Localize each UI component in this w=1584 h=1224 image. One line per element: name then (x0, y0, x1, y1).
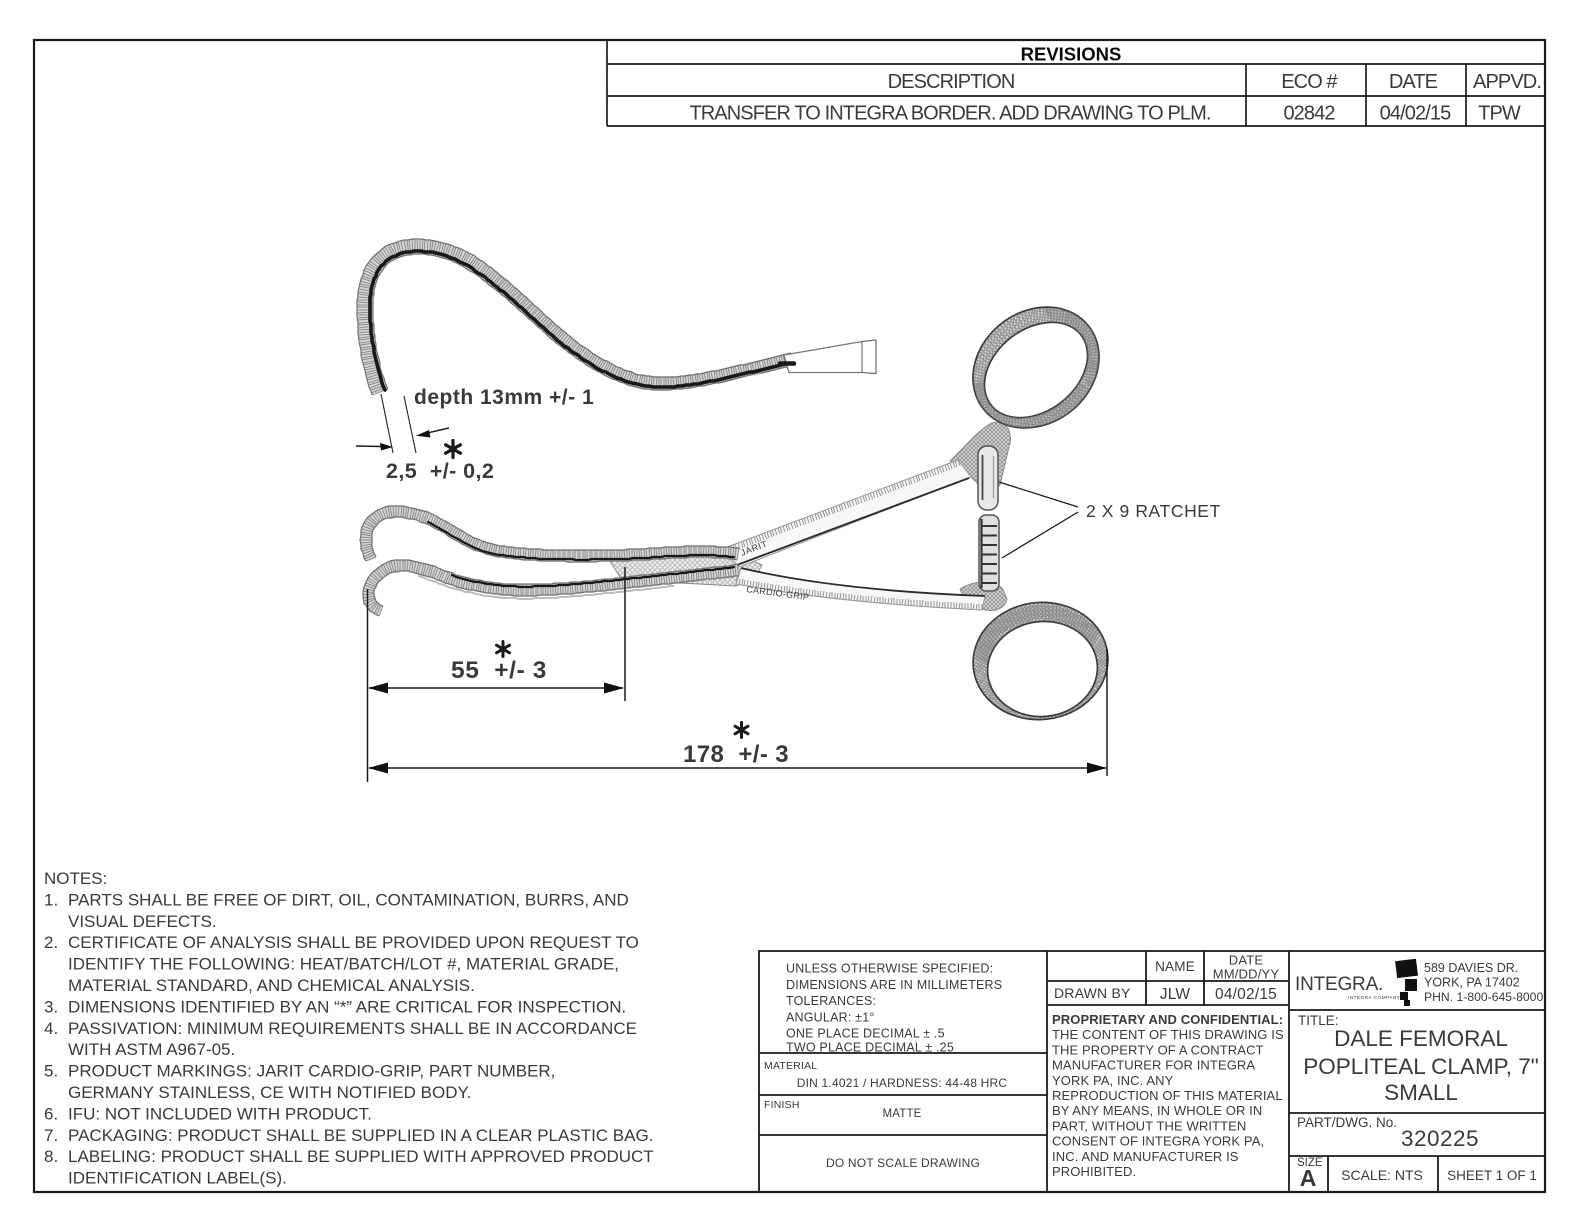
svg-text:PART/DWG. No.: PART/DWG. No. (1297, 1115, 1397, 1130)
svg-text:3.: 3. (44, 997, 58, 1016)
svg-text:WITH ASTM A967-05.: WITH ASTM A967-05. (68, 1040, 235, 1059)
svg-text:depth 13mm +/- 1: depth 13mm +/- 1 (414, 386, 594, 409)
svg-text:TWO PLACE DECIMAL ± .25: TWO PLACE DECIMAL ± .25 (786, 1041, 954, 1055)
svg-text:PASSIVATION: MINIMUM REQUIREME: PASSIVATION: MINIMUM REQUIREMENTS SHALL … (68, 1019, 637, 1038)
svg-text:178 +/- 3: 178 +/- 3 (683, 741, 789, 768)
svg-text:8.: 8. (44, 1147, 58, 1166)
svg-text:DATE: DATE (1389, 71, 1438, 93)
svg-text:PHN. 1-800-645-8000: PHN. 1-800-645-8000 (1424, 990, 1543, 1004)
svg-text:IDENTIFICATION LABEL(S).: IDENTIFICATION LABEL(S). (68, 1169, 287, 1188)
svg-text:5.: 5. (44, 1062, 58, 1081)
svg-text:2.: 2. (44, 933, 58, 952)
svg-text:02842: 02842 (1283, 103, 1335, 125)
svg-text:ECO #: ECO # (1281, 71, 1338, 93)
svg-text:PART, WITHOUT THE WRITTEN: PART, WITHOUT THE WRITTEN (1052, 1118, 1246, 1133)
svg-text:FINISH: FINISH (764, 1099, 800, 1111)
svg-text:YORK PA, INC. ANY: YORK PA, INC. ANY (1052, 1073, 1174, 1088)
svg-text:THE CONTENT OF THIS DRAWING IS: THE CONTENT OF THIS DRAWING IS (1052, 1027, 1284, 1042)
svg-text:SHEET 1 OF 1: SHEET 1 OF 1 (1447, 1168, 1537, 1183)
svg-text:PACKAGING: PRODUCT SHALL BE SU: PACKAGING: PRODUCT SHALL BE SUPPLIED IN … (68, 1126, 653, 1145)
svg-text:MATTE: MATTE (882, 1108, 921, 1120)
svg-text:DRAWN BY: DRAWN BY (1054, 985, 1131, 1001)
svg-text:1.: 1. (44, 890, 58, 909)
svg-text:DIMENSIONS IDENTIFIED BY AN “*: DIMENSIONS IDENTIFIED BY AN “*” ARE CRIT… (68, 997, 626, 1016)
svg-text:THE PROPERTY OF A CONTRACT: THE PROPERTY OF A CONTRACT (1052, 1042, 1264, 1057)
svg-text:TOLERANCES:: TOLERANCES: (786, 994, 876, 1008)
svg-text:DIMENSIONS ARE IN MILLIMETERS: DIMENSIONS ARE IN MILLIMETERS (786, 978, 1002, 992)
svg-text:ONE PLACE DECIMAL ± .5: ONE PLACE DECIMAL ± .5 (786, 1027, 945, 1041)
svg-text:DALE FEMORAL: DALE FEMORAL (1334, 1026, 1508, 1051)
svg-text:VISUAL DEFECTS.: VISUAL DEFECTS. (68, 912, 217, 931)
svg-text:2,5 +/- 0,2: 2,5 +/- 0,2 (386, 459, 494, 483)
svg-text:MATERIAL STANDARD, AND CHEMICA: MATERIAL STANDARD, AND CHEMICAL ANALYSIS… (68, 976, 475, 995)
svg-text:YORK, PA 17402: YORK, PA 17402 (1424, 976, 1520, 990)
svg-text:APPVD.: APPVD. (1473, 71, 1541, 93)
svg-text:IDENTIFY THE FOLLOWING: HEAT/B: IDENTIFY THE FOLLOWING: HEAT/BATCH/LOT #… (68, 955, 619, 974)
svg-text:IFU: NOT INCLUDED WITH PRODUCT: IFU: NOT INCLUDED WITH PRODUCT. (68, 1104, 372, 1123)
svg-text:DESCRIPTION: DESCRIPTION (888, 71, 1015, 93)
svg-text:TPW: TPW (1478, 103, 1521, 125)
svg-text:589 DAVIES DR.: 589 DAVIES DR. (1424, 961, 1518, 975)
svg-text:LABELING: PRODUCT SHALL BE SUP: LABELING: PRODUCT SHALL BE SUPPLIED WITH… (68, 1147, 654, 1166)
svg-text:SMALL: SMALL (1384, 1080, 1458, 1105)
svg-text:4.: 4. (44, 1019, 58, 1038)
svg-text:NOTES:: NOTES: (44, 869, 107, 888)
svg-text:CERTIFICATE OF ANALYSIS SHALL: CERTIFICATE OF ANALYSIS SHALL BE PROVIDE… (68, 933, 639, 952)
svg-text:PROHIBITED.: PROHIBITED. (1052, 1164, 1136, 1179)
svg-text:INTEGRA COMPANY: INTEGRA COMPANY (1348, 995, 1401, 1001)
svg-text:DO NOT SCALE DRAWING: DO NOT SCALE DRAWING (826, 1156, 980, 1170)
svg-text:TRANSFER TO INTEGRA BORDER. AD: TRANSFER TO INTEGRA BORDER. ADD DRAWING … (689, 103, 1210, 125)
svg-text:INC. AND MANUFACTURER IS: INC. AND MANUFACTURER IS (1052, 1149, 1239, 1164)
svg-text:MANUFACTURER FOR INTEGRA: MANUFACTURER FOR INTEGRA (1052, 1058, 1255, 1073)
svg-text:GERMANY STAINLESS, CE WITH NOT: GERMANY STAINLESS, CE WITH NOTIFIED BODY… (68, 1083, 471, 1102)
svg-text:UNLESS OTHERWISE SPECIFIED:: UNLESS OTHERWISE SPECIFIED: (786, 962, 993, 976)
svg-text:TITLE:: TITLE: (1298, 1013, 1339, 1028)
svg-text:PROPRIETARY AND CONFIDENTIAL:: PROPRIETARY AND CONFIDENTIAL: (1052, 1012, 1283, 1027)
svg-text:MM/DD/YY: MM/DD/YY (1213, 967, 1280, 982)
svg-text:320225: 320225 (1401, 1126, 1479, 1151)
svg-text:2 X 9 RATCHET: 2 X 9 RATCHET (1086, 501, 1221, 521)
svg-text:7.: 7. (44, 1126, 58, 1145)
svg-text:PARTS SHALL BE FREE OF DIRT, O: PARTS SHALL BE FREE OF DIRT, OIL, CONTAM… (68, 890, 629, 909)
svg-text:DIN 1.4021 / HARDNESS: 44-48 H: DIN 1.4021 / HARDNESS: 44-48 HRC (797, 1076, 1008, 1090)
svg-text:INTEGRA.: INTEGRA. (1295, 974, 1383, 995)
svg-text:REVISIONS: REVISIONS (1021, 44, 1122, 65)
svg-text:04/02/15: 04/02/15 (1380, 103, 1451, 125)
svg-text:CONSENT OF INTEGRA YORK PA,: CONSENT OF INTEGRA YORK PA, (1052, 1134, 1264, 1149)
svg-text:POPLITEAL CLAMP, 7": POPLITEAL CLAMP, 7" (1303, 1054, 1539, 1079)
svg-text:PRODUCT MARKINGS: JARIT CARDIO: PRODUCT MARKINGS: JARIT CARDIO-GRIP, PAR… (68, 1062, 555, 1081)
svg-text:NAME: NAME (1155, 959, 1195, 974)
svg-text:MATERIAL: MATERIAL (764, 1060, 817, 1072)
svg-text:SCALE: NTS: SCALE: NTS (1341, 1167, 1423, 1183)
svg-text:JLW: JLW (1160, 986, 1191, 1003)
svg-text:BY ANY MEANS, IN WHOLE OR IN: BY ANY MEANS, IN WHOLE OR IN (1052, 1103, 1262, 1118)
svg-text:55 +/- 3: 55 +/- 3 (451, 657, 547, 684)
svg-text:A: A (1300, 1165, 1317, 1191)
svg-text:REPRODUCTION OF THIS MATERIAL: REPRODUCTION OF THIS MATERIAL (1052, 1088, 1283, 1103)
svg-text:DATE: DATE (1229, 953, 1264, 968)
svg-text:ANGULAR: ±1°: ANGULAR: ±1° (786, 1010, 875, 1024)
svg-text:04/02/15: 04/02/15 (1215, 986, 1277, 1003)
svg-text:6.: 6. (44, 1104, 58, 1123)
